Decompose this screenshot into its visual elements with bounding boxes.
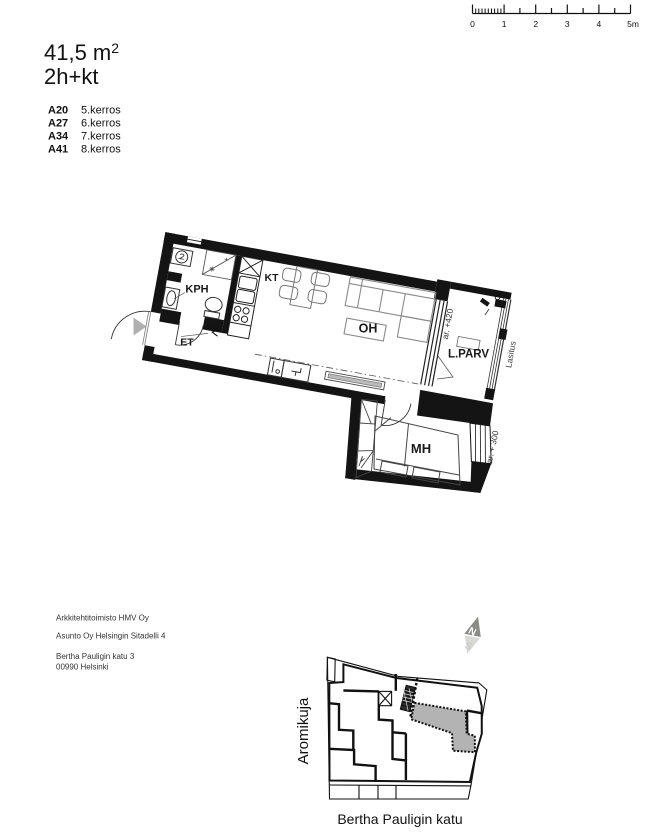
svg-text:Bertha Pauligin katu: Bertha Pauligin katu [337, 811, 462, 827]
svg-text:A34: A34 [48, 131, 69, 143]
svg-text:8.kerros: 8.kerros [81, 144, 121, 156]
svg-text:2: 2 [533, 19, 538, 29]
svg-text:Arkkitehtitoimisto HMV Oy: Arkkitehtitoimisto HMV Oy [56, 614, 149, 623]
svg-text:MH: MH [411, 441, 431, 456]
svg-text:A41: A41 [48, 144, 68, 156]
svg-text:5.kerros: 5.kerros [81, 105, 121, 117]
svg-text:OH: OH [359, 322, 378, 336]
svg-text:KT: KT [265, 272, 280, 284]
svg-text:4: 4 [597, 19, 602, 29]
svg-text:5m: 5m [627, 19, 639, 29]
svg-text:3: 3 [565, 19, 570, 29]
svg-text:00990 Helsinki: 00990 Helsinki [56, 663, 109, 672]
svg-text:Asunto Oy Helsingin Sitadelli: Asunto Oy Helsingin Sitadelli 4 [56, 632, 166, 641]
svg-text:41,5 m2: 41,5 m2 [44, 40, 119, 65]
svg-text:0: 0 [470, 19, 475, 29]
svg-text:A20: A20 [48, 105, 68, 117]
svg-text:6.kerros: 6.kerros [81, 118, 121, 130]
svg-text:2h+kt: 2h+kt [44, 64, 98, 89]
svg-text:Lasitus: Lasitus [503, 340, 518, 368]
svg-text:Bertha Pauligin katu 3: Bertha Pauligin katu 3 [56, 652, 135, 661]
svg-text:Aromikuja: Aromikuja [295, 697, 312, 764]
svg-text:KPH: KPH [185, 284, 208, 296]
svg-text:A27: A27 [48, 118, 68, 130]
svg-text:7.kerros: 7.kerros [81, 131, 121, 143]
svg-text:ET: ET [180, 337, 194, 349]
svg-text:1: 1 [502, 19, 507, 29]
svg-text:L.PARV: L.PARV [448, 349, 489, 361]
